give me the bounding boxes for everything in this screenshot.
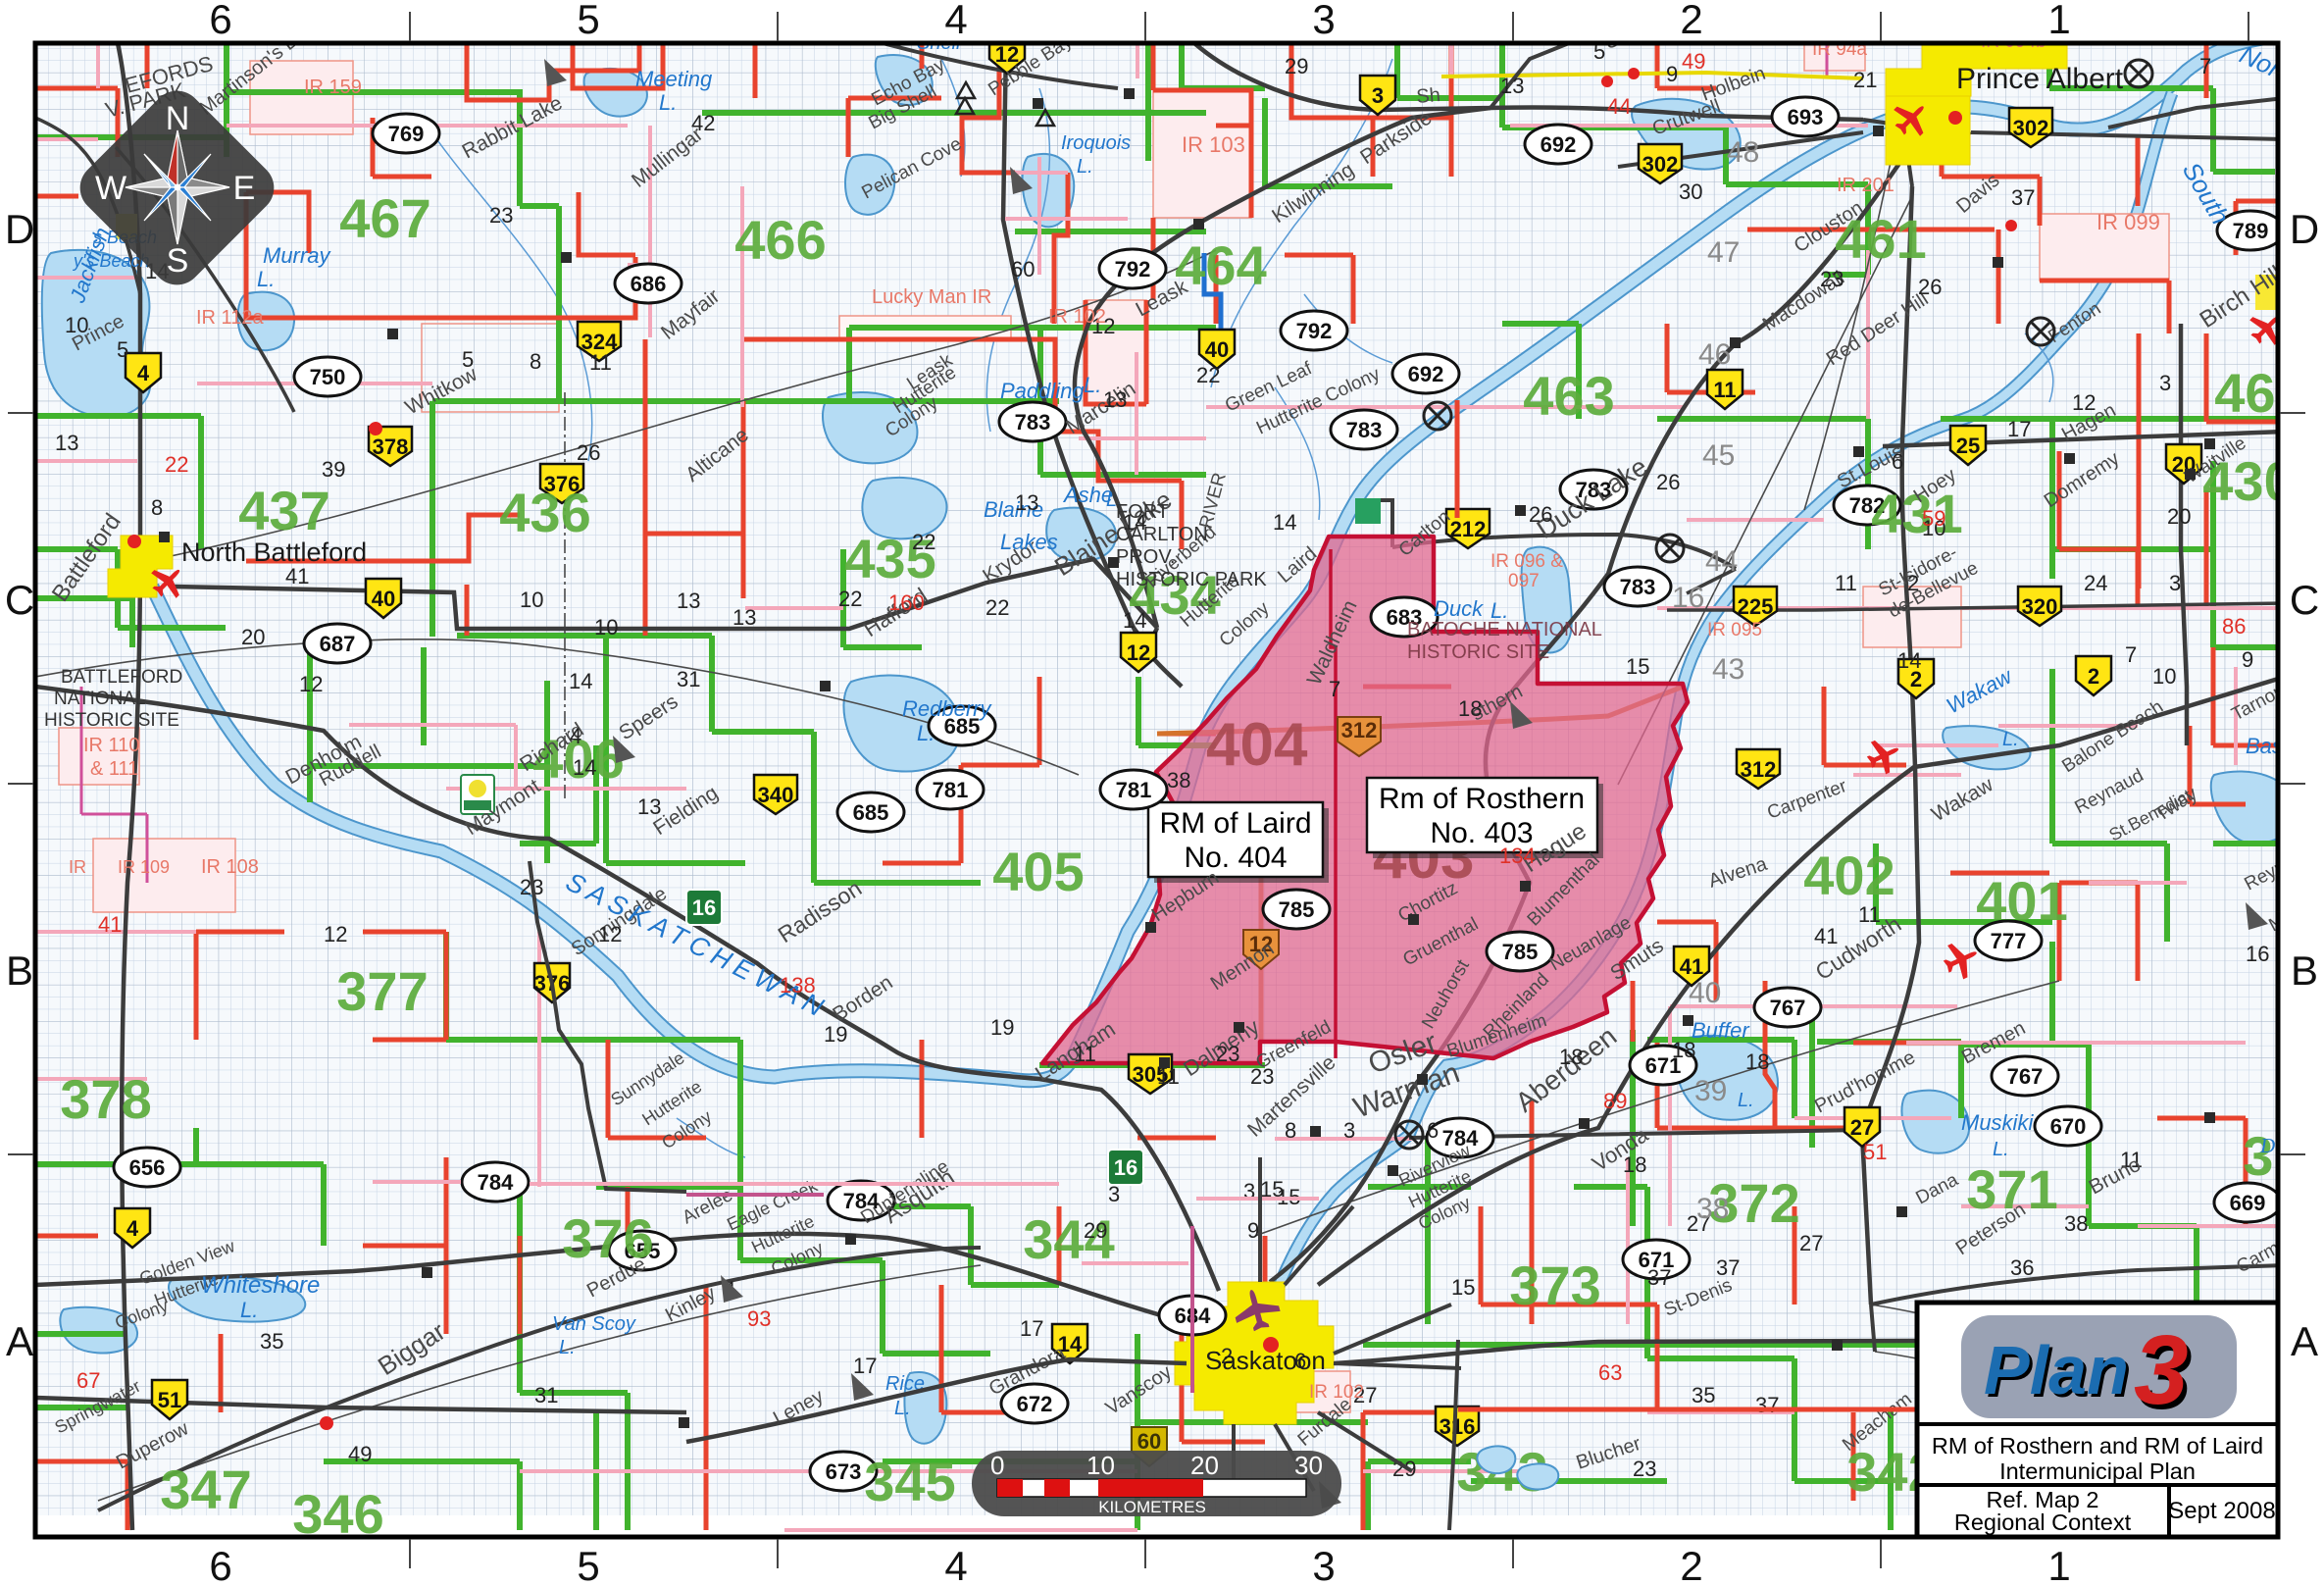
svg-text:67: 67 — [76, 1368, 100, 1393]
svg-text:51: 51 — [1863, 1140, 1887, 1164]
svg-text:20: 20 — [241, 625, 265, 649]
svg-text:Van Scoy: Van Scoy — [552, 1313, 636, 1335]
svg-text:IR 099: IR 099 — [2097, 210, 2160, 234]
svg-text:463: 463 — [1523, 365, 1614, 427]
svg-text:10: 10 — [520, 588, 543, 612]
svg-text:6: 6 — [209, 0, 231, 42]
svg-text:302: 302 — [2013, 116, 2049, 140]
svg-text:93: 93 — [747, 1306, 771, 1331]
svg-text:35: 35 — [1692, 1383, 1715, 1407]
svg-text:BATTLEFORD: BATTLEFORD — [61, 667, 182, 688]
svg-text:PROV.: PROV. — [1116, 546, 1175, 568]
svg-text:17: 17 — [1020, 1316, 1043, 1341]
svg-text:10: 10 — [594, 615, 618, 640]
svg-text:42: 42 — [691, 111, 715, 135]
svg-text:22: 22 — [985, 595, 1009, 620]
svg-text:37: 37 — [1647, 1265, 1671, 1290]
svg-text:14: 14 — [1273, 510, 1296, 535]
svg-text:40: 40 — [372, 587, 395, 611]
svg-text:12: 12 — [598, 922, 622, 946]
svg-text:750: 750 — [310, 365, 346, 389]
svg-text:20: 20 — [2167, 504, 2191, 529]
svg-text:673: 673 — [826, 1459, 862, 1484]
svg-text:670: 670 — [2050, 1114, 2087, 1139]
svg-text:L.: L. — [917, 721, 935, 745]
svg-text:14: 14 — [1897, 648, 1921, 673]
svg-text:CARLTON: CARLTON — [1116, 524, 1208, 545]
svg-text:Redberry: Redberry — [902, 696, 992, 721]
svg-text:A: A — [2291, 1318, 2318, 1364]
svg-text:Lakes: Lakes — [1000, 530, 1058, 554]
svg-text:692: 692 — [1408, 362, 1444, 386]
svg-text:RM of Rosthern and RM of Laird: RM of Rosthern and RM of Laird — [1932, 1433, 2263, 1458]
svg-text:Murray: Murray — [263, 243, 331, 268]
svg-text:40: 40 — [1205, 337, 1229, 362]
svg-text:436: 436 — [499, 482, 590, 543]
svg-text:767: 767 — [2007, 1064, 2044, 1089]
svg-text:Rm of Rosthern: Rm of Rosthern — [1379, 783, 1585, 815]
svg-text:A: A — [6, 1318, 33, 1364]
svg-text:3: 3 — [2159, 371, 2171, 395]
svg-text:NATIONAL: NATIONAL — [54, 689, 146, 709]
svg-text:781: 781 — [1116, 778, 1152, 802]
svg-text:46: 46 — [1698, 338, 1731, 371]
svg-text:BATOCHE NATIONAL: BATOCHE NATIONAL — [1407, 619, 1602, 640]
svg-text:20: 20 — [1190, 1451, 1219, 1480]
svg-text:36: 36 — [2010, 1255, 2034, 1280]
svg-text:11: 11 — [1713, 378, 1736, 402]
svg-text:14: 14 — [569, 669, 592, 693]
svg-text:12: 12 — [2072, 390, 2096, 415]
svg-text:3: 3 — [2134, 1315, 2189, 1425]
svg-text:377: 377 — [336, 960, 428, 1022]
svg-text:781: 781 — [933, 778, 969, 802]
svg-text:IR: IR — [69, 857, 86, 877]
svg-text:Buffer: Buffer — [1692, 1018, 1750, 1043]
svg-text:L.: L. — [659, 90, 677, 115]
svg-text:RM of Laird: RM of Laird — [1159, 807, 1311, 840]
svg-text:59: 59 — [1922, 506, 1945, 531]
svg-text:Sh: Sh — [1416, 84, 1441, 108]
svg-text:49: 49 — [348, 1442, 372, 1466]
svg-text:35: 35 — [260, 1329, 283, 1354]
svg-text:No. 404: No. 404 — [1184, 842, 1287, 874]
svg-text:3: 3 — [1312, 1543, 1335, 1586]
svg-text:783: 783 — [1346, 418, 1383, 442]
svg-text:3: 3 — [1108, 1182, 1120, 1206]
svg-text:3: 3 — [1372, 83, 1384, 108]
svg-text:26: 26 — [1918, 275, 1942, 299]
svg-text:6: 6 — [209, 1543, 231, 1586]
svg-text:467: 467 — [339, 187, 430, 249]
svg-text:7: 7 — [2199, 54, 2211, 78]
svg-text:10: 10 — [65, 313, 88, 337]
svg-text:212: 212 — [1450, 517, 1487, 541]
svg-text:Iroquois: Iroquois — [1061, 132, 1131, 154]
svg-text:38: 38 — [1167, 768, 1190, 793]
svg-text:4: 4 — [126, 1216, 139, 1241]
svg-text:340: 340 — [758, 783, 794, 807]
svg-text:7: 7 — [2125, 642, 2137, 667]
svg-text:12: 12 — [1127, 640, 1150, 665]
svg-text:312: 312 — [1341, 718, 1378, 742]
svg-text:Meeting: Meeting — [635, 67, 713, 91]
svg-text:41: 41 — [1680, 954, 1703, 979]
svg-text:345: 345 — [864, 1451, 955, 1512]
svg-text:378: 378 — [373, 435, 409, 459]
svg-text:7: 7 — [1329, 677, 1340, 701]
svg-text:L.: L. — [1738, 1090, 1754, 1111]
svg-text:3: 3 — [1312, 0, 1335, 42]
svg-text:17: 17 — [853, 1354, 877, 1378]
svg-text:9: 9 — [2242, 647, 2253, 672]
svg-text:669: 669 — [2230, 1191, 2266, 1215]
svg-text:784: 784 — [478, 1170, 514, 1195]
svg-text:D: D — [5, 206, 34, 252]
svg-text:30: 30 — [1679, 179, 1702, 204]
svg-text:23: 23 — [489, 203, 513, 228]
svg-text:37: 37 — [1755, 1393, 1779, 1417]
svg-text:51: 51 — [158, 1388, 181, 1412]
svg-text:29: 29 — [1285, 54, 1308, 78]
svg-text:60: 60 — [1011, 257, 1035, 281]
svg-text:12: 12 — [299, 672, 323, 696]
svg-text:3: 3 — [1343, 1118, 1355, 1143]
svg-text:12: 12 — [324, 922, 347, 946]
svg-text:W: W — [95, 170, 126, 207]
svg-text:86: 86 — [2222, 614, 2246, 639]
svg-text:769: 769 — [388, 122, 425, 146]
svg-text:320: 320 — [2022, 594, 2058, 619]
svg-text:48: 48 — [1727, 136, 1759, 169]
svg-text:E: E — [233, 170, 256, 207]
svg-text:13: 13 — [733, 605, 756, 630]
svg-text:21: 21 — [1853, 68, 1877, 92]
svg-text:23: 23 — [1820, 267, 1844, 291]
svg-text:685: 685 — [853, 800, 889, 825]
svg-text:18: 18 — [1623, 1152, 1646, 1177]
svg-text:26: 26 — [577, 440, 600, 465]
svg-text:HISTORIC SITE: HISTORIC SITE — [44, 710, 179, 731]
svg-text:L.: L. — [894, 1398, 911, 1419]
svg-text:HISTORIC SITE: HISTORIC SITE — [1407, 641, 1549, 663]
svg-text:IR 108: IR 108 — [201, 856, 259, 878]
svg-text:Intermunicipal Plan: Intermunicipal Plan — [1999, 1458, 2196, 1484]
svg-text:692: 692 — [1541, 132, 1577, 157]
svg-text:13: 13 — [677, 588, 700, 613]
svg-text:1: 1 — [2047, 0, 2070, 42]
svg-text:22: 22 — [912, 530, 935, 554]
svg-text:27: 27 — [1850, 1115, 1874, 1140]
svg-text:464: 464 — [1175, 234, 1266, 296]
svg-text:44: 44 — [1705, 545, 1738, 578]
svg-text:6: 6 — [1427, 1118, 1439, 1143]
svg-text:Sept 2008: Sept 2008 — [2168, 1498, 2275, 1524]
svg-text:IR 103: IR 103 — [1182, 132, 1245, 157]
svg-text:IR 109: IR 109 — [118, 857, 170, 877]
svg-text:49: 49 — [1682, 49, 1705, 74]
svg-text:IR 159: IR 159 — [304, 77, 362, 98]
svg-text:2: 2 — [1907, 571, 1919, 595]
svg-text:37: 37 — [2011, 185, 2035, 210]
svg-text:13: 13 — [637, 794, 661, 819]
svg-text:4: 4 — [944, 1543, 967, 1586]
svg-text:13: 13 — [1500, 74, 1524, 98]
svg-text:6: 6 — [1892, 449, 1903, 474]
svg-text:5: 5 — [577, 0, 599, 42]
svg-text:Muskiki: Muskiki — [1961, 1110, 2034, 1135]
svg-text:HISTORIC PARK: HISTORIC PARK — [1116, 569, 1267, 590]
svg-text:31: 31 — [677, 667, 700, 691]
svg-text:L.: L. — [1084, 373, 1101, 397]
svg-text:097: 097 — [1508, 571, 1540, 591]
svg-text:16: 16 — [2246, 942, 2269, 966]
svg-text:L.: L. — [1993, 1139, 2009, 1160]
svg-text:Prince Albert: Prince Albert — [1956, 63, 2124, 95]
svg-text:41: 41 — [98, 912, 122, 937]
svg-text:10: 10 — [1086, 1451, 1115, 1480]
svg-text:23: 23 — [1633, 1457, 1656, 1481]
svg-text:89: 89 — [1603, 1089, 1627, 1113]
svg-text:S: S — [167, 242, 189, 280]
svg-text:0: 0 — [990, 1451, 1004, 1480]
svg-text:44: 44 — [1607, 94, 1631, 119]
svg-text:405: 405 — [992, 841, 1084, 902]
svg-text:L.: L. — [559, 1337, 576, 1358]
svg-text:D: D — [2290, 206, 2319, 252]
svg-text:IR 112a: IR 112a — [196, 307, 264, 329]
svg-text:15: 15 — [1626, 654, 1649, 679]
svg-text:18: 18 — [1672, 1038, 1695, 1062]
svg-text:C: C — [2290, 577, 2319, 623]
svg-text:14: 14 — [1123, 608, 1146, 633]
svg-text:16: 16 — [1672, 582, 1704, 614]
svg-text:KILOMETRES: KILOMETRES — [1098, 1498, 1206, 1516]
svg-text:22: 22 — [1196, 363, 1220, 387]
svg-text:792: 792 — [1296, 319, 1333, 343]
svg-text:26: 26 — [1656, 470, 1680, 494]
svg-text:402: 402 — [1803, 844, 1895, 906]
svg-text:138: 138 — [780, 973, 816, 998]
svg-text:1: 1 — [2047, 1543, 2070, 1586]
svg-text:Lucky Man IR: Lucky Man IR — [872, 286, 991, 308]
svg-text:10: 10 — [2152, 664, 2176, 689]
svg-text:27: 27 — [1799, 1231, 1823, 1255]
svg-text:312: 312 — [1741, 757, 1777, 782]
svg-text:687: 687 — [320, 632, 356, 656]
svg-text:13: 13 — [55, 431, 78, 455]
svg-text:5: 5 — [117, 337, 128, 362]
svg-text:15: 15 — [1451, 1275, 1475, 1300]
svg-text:22: 22 — [838, 587, 862, 611]
svg-text:39: 39 — [322, 457, 345, 482]
svg-text:IR 201: IR 201 — [1837, 175, 1895, 196]
svg-text:B: B — [6, 947, 33, 994]
svg-text:785: 785 — [1279, 897, 1315, 922]
svg-text:134: 134 — [1499, 844, 1536, 868]
svg-text:672: 672 — [1017, 1392, 1053, 1416]
svg-text:26: 26 — [1529, 502, 1552, 527]
svg-text:Plan: Plan — [1984, 1332, 2129, 1408]
svg-text:L.: L. — [257, 267, 275, 291]
svg-text:16: 16 — [692, 895, 716, 920]
svg-text:31: 31 — [534, 1383, 558, 1407]
svg-text:11: 11 — [1835, 571, 1857, 595]
svg-text:41: 41 — [285, 564, 309, 588]
svg-text:38: 38 — [1696, 1193, 1729, 1225]
svg-text:IR 110: IR 110 — [83, 735, 139, 756]
svg-text:2: 2 — [1680, 1543, 1702, 1586]
svg-text:4: 4 — [944, 0, 967, 42]
svg-text:Regional Context: Regional Context — [1954, 1509, 2132, 1535]
svg-text:18: 18 — [1745, 1049, 1769, 1074]
svg-text:9: 9 — [1666, 62, 1678, 86]
svg-text:IR 096 &: IR 096 & — [1490, 551, 1563, 572]
svg-text:19: 19 — [990, 1015, 1014, 1040]
svg-text:3: 3 — [2169, 571, 2181, 595]
svg-text:302: 302 — [1642, 152, 1679, 177]
svg-text:401: 401 — [1976, 870, 2067, 932]
svg-text:767: 767 — [1770, 996, 1806, 1020]
svg-text:Duck: Duck — [1434, 596, 1484, 621]
svg-text:N: N — [166, 100, 190, 137]
svg-text:11: 11 — [1858, 902, 1881, 927]
svg-text:25: 25 — [1956, 434, 1980, 458]
svg-text:13: 13 — [1103, 387, 1127, 412]
svg-text:63: 63 — [1598, 1360, 1622, 1385]
svg-text:FORT: FORT — [1116, 501, 1169, 523]
svg-text:23: 23 — [1250, 1064, 1274, 1089]
svg-text:9: 9 — [1247, 1218, 1259, 1243]
svg-text:23: 23 — [1216, 1042, 1239, 1066]
svg-text:IR 102: IR 102 — [1309, 1382, 1364, 1403]
svg-text:783: 783 — [1620, 575, 1656, 599]
svg-text:19: 19 — [824, 1022, 847, 1047]
svg-text:4: 4 — [570, 724, 581, 748]
svg-text:North Battleford: North Battleford — [181, 537, 367, 567]
svg-text:373: 373 — [1509, 1254, 1600, 1316]
svg-text:14: 14 — [573, 755, 596, 780]
svg-text:38: 38 — [2064, 1211, 2088, 1236]
svg-text:4: 4 — [137, 361, 150, 385]
svg-text:783: 783 — [1015, 410, 1051, 435]
svg-text:785: 785 — [1502, 940, 1539, 964]
svg-text:B: B — [2291, 947, 2318, 994]
svg-text:13: 13 — [1015, 490, 1038, 515]
svg-text:IR 102: IR 102 — [1048, 306, 1106, 328]
svg-text:39: 39 — [1694, 1075, 1727, 1107]
svg-text:L.: L. — [1077, 156, 1093, 178]
svg-text:225: 225 — [1738, 594, 1774, 619]
svg-text:29: 29 — [1084, 1218, 1107, 1243]
svg-text:378: 378 — [60, 1068, 151, 1130]
svg-text:11: 11 — [1074, 1042, 1096, 1066]
svg-text:2: 2 — [1680, 0, 1702, 42]
svg-text:347: 347 — [160, 1458, 251, 1520]
svg-text:17: 17 — [2007, 417, 2031, 441]
svg-text:316: 316 — [1440, 1414, 1476, 1439]
svg-text:5: 5 — [462, 347, 474, 372]
svg-text:466: 466 — [734, 209, 826, 271]
svg-text:404: 404 — [1206, 711, 1308, 779]
svg-text:777: 777 — [1991, 929, 2027, 953]
svg-text:160: 160 — [888, 590, 925, 615]
svg-text:L.: L. — [2002, 729, 2019, 750]
svg-text:47: 47 — [1707, 236, 1740, 269]
svg-text:16: 16 — [1114, 1155, 1137, 1180]
svg-text:24: 24 — [2084, 571, 2107, 595]
svg-text:8: 8 — [151, 495, 163, 520]
svg-text:8: 8 — [1285, 1118, 1296, 1143]
svg-text:C: C — [5, 577, 34, 623]
svg-text:789: 789 — [2233, 219, 2269, 243]
svg-text:45: 45 — [1702, 439, 1735, 472]
svg-text:L.: L. — [240, 1298, 258, 1322]
svg-text:41: 41 — [1814, 924, 1838, 948]
svg-text:693: 693 — [1788, 105, 1824, 129]
svg-text:& 111: & 111 — [90, 758, 138, 780]
svg-text:656: 656 — [129, 1155, 166, 1180]
svg-text:792: 792 — [1115, 257, 1151, 281]
svg-text:437: 437 — [238, 480, 329, 541]
svg-text:18: 18 — [1458, 696, 1482, 721]
svg-text:18: 18 — [1559, 1045, 1583, 1069]
svg-text:43: 43 — [1712, 653, 1744, 686]
svg-text:40: 40 — [1689, 977, 1721, 1009]
svg-text:11: 11 — [589, 350, 612, 375]
svg-text:60: 60 — [1137, 1429, 1161, 1454]
svg-text:Whiteshore: Whiteshore — [201, 1272, 320, 1299]
svg-text:2: 2 — [2088, 664, 2099, 689]
svg-text:Paddling: Paddling — [1000, 379, 1085, 403]
svg-text:8: 8 — [530, 349, 541, 374]
svg-text:30: 30 — [1294, 1451, 1323, 1480]
svg-text:IR 095: IR 095 — [1707, 620, 1762, 640]
svg-text:22: 22 — [165, 452, 188, 477]
svg-text:37: 37 — [1716, 1255, 1740, 1280]
svg-text:686: 686 — [631, 272, 667, 296]
svg-text:5: 5 — [577, 1543, 599, 1586]
